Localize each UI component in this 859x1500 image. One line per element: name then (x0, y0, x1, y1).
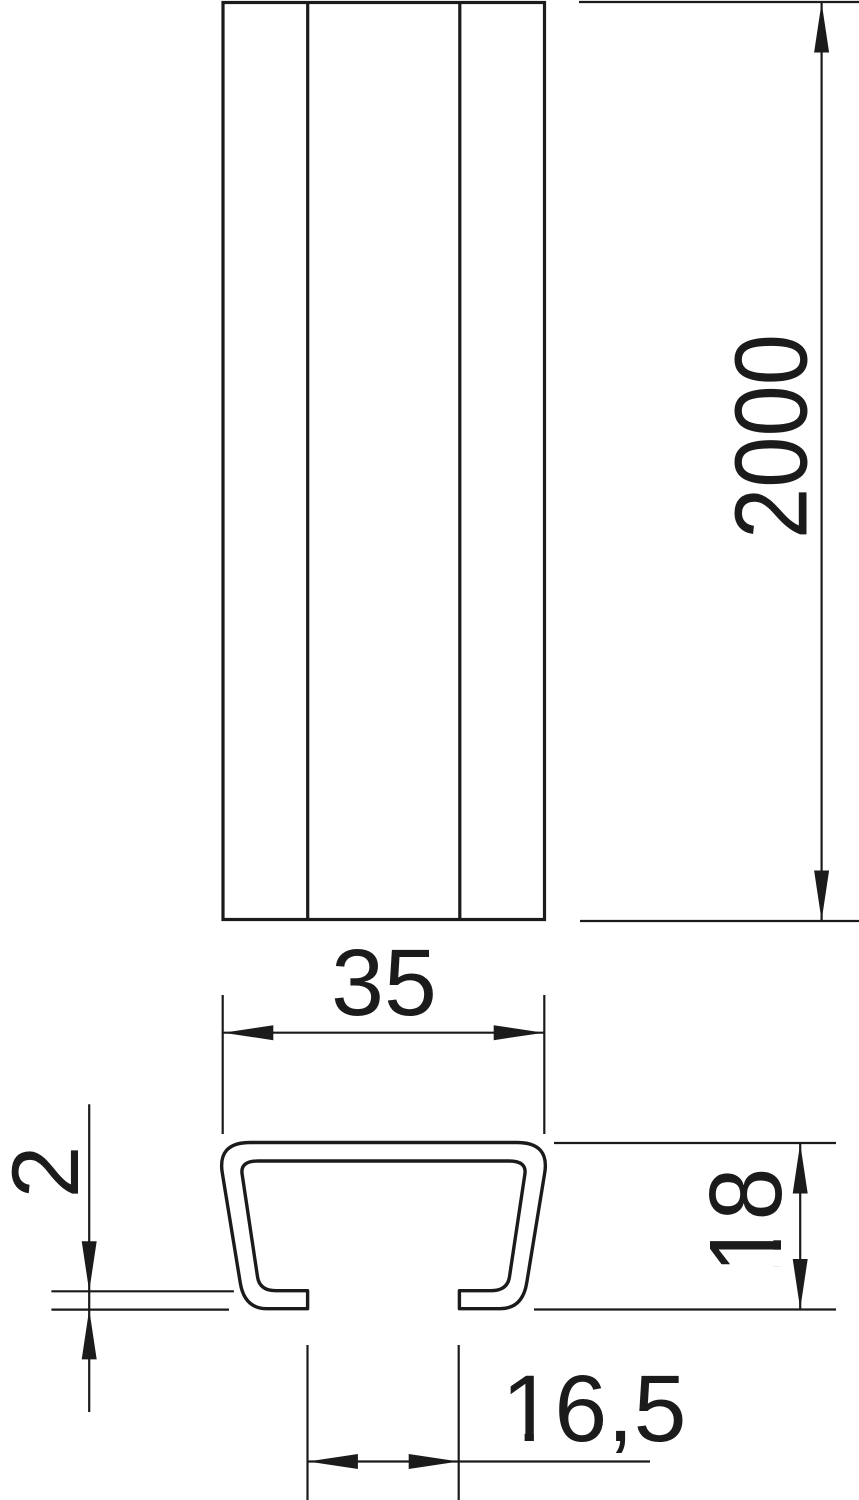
svg-text:2000: 2000 (714, 334, 829, 539)
svg-text:16,5: 16,5 (502, 1356, 687, 1462)
svg-text:18: 18 (688, 1168, 803, 1274)
svg-text:35: 35 (331, 930, 437, 1036)
svg-text:2: 2 (0, 1145, 99, 1198)
